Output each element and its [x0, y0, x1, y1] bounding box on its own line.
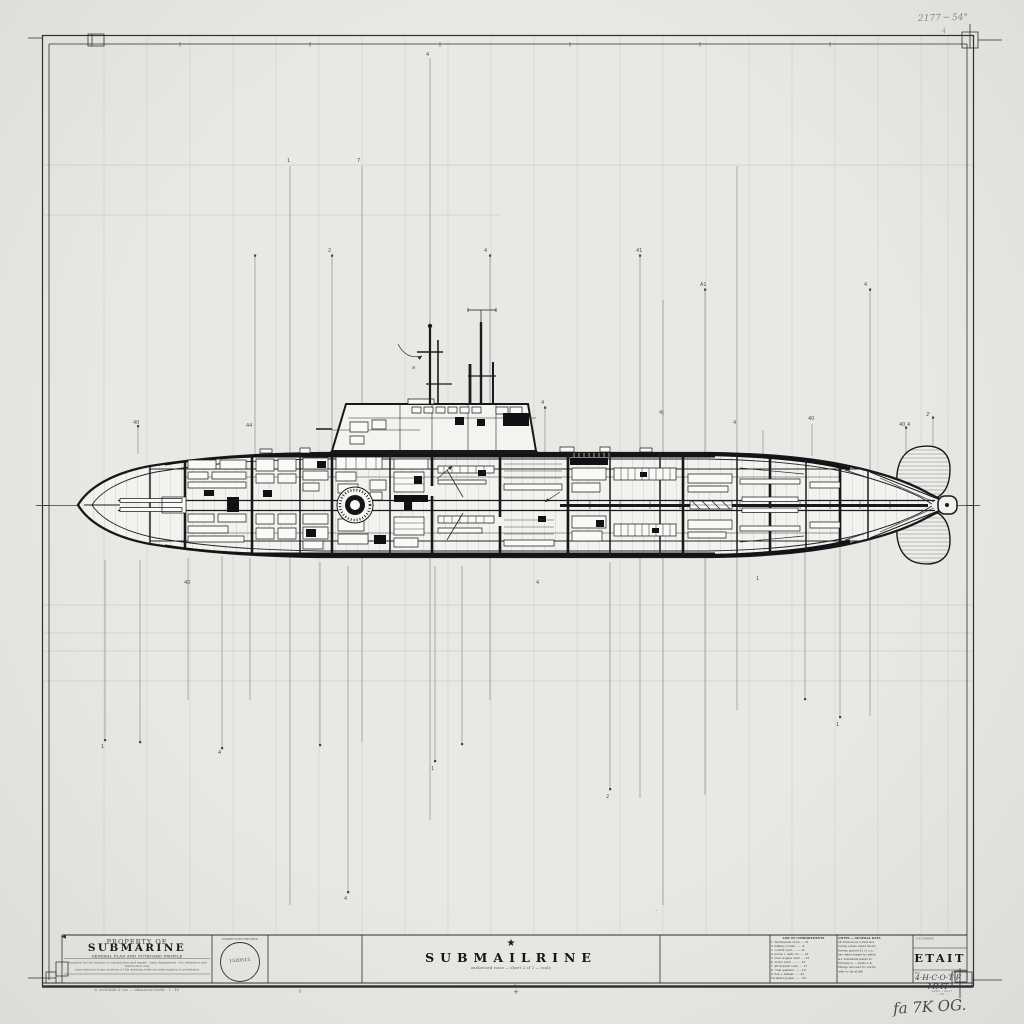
dimension-label: 1 [431, 766, 434, 772]
title-block-left-title: SUBMARINE [62, 942, 212, 954]
dimension-label: 1 [287, 158, 290, 164]
dimension-label: 40 [808, 416, 814, 422]
notes-line: refer to list at left. [838, 970, 912, 974]
dimension-label: 40 [133, 420, 139, 426]
title-block-center-title: SUBMAILRINE [362, 950, 660, 965]
dimension-label: 4| [659, 410, 664, 416]
dimension-ticks [104, 255, 934, 894]
dimension-label: A1 [700, 282, 707, 288]
sheet-value-handwriting: 4·H·C·O·T·F MMT [913, 973, 963, 991]
blueprint-canvas: 4044172444414|A1440440 42'a1441214041· [0, 0, 1024, 1024]
dimension-label: 4 [218, 750, 221, 756]
star-icon: ★ [362, 938, 660, 949]
stern-cap [938, 496, 957, 514]
dimension-label: · [656, 908, 658, 914]
stamp-header: INSPECTOR'S RECORD [212, 938, 268, 944]
dimension-label: 4 [541, 400, 544, 406]
title-block-left-line2: reproduction of any portion of this draw… [64, 968, 210, 975]
hatch-circle [337, 487, 373, 523]
sheet-id: ETAIT [913, 951, 967, 965]
blueprint-page: 4044172444414|A1440440 42'a1441214041· P… [0, 0, 1024, 1024]
dimension-label: 41 [636, 248, 642, 254]
dimension-label: 4 [864, 282, 867, 288]
cutaway-label: CUTAWAY [916, 937, 965, 944]
title-block-center-subtitle: authorized issue — sheet 2 of 2 — scale [362, 966, 660, 974]
dimension-label: 4 [733, 420, 736, 426]
pencil-note-small: 4 [942, 28, 962, 35]
footer-left-note: · w. archibald & son — submarine works ·… [92, 988, 312, 996]
dimension-label: 40 4 [899, 422, 910, 428]
dimension-label: 1 [836, 722, 839, 728]
dimension-label: 40 [184, 580, 190, 586]
parts-list-row: 10 steering gear ....... 24 [771, 977, 836, 981]
dimension-label: 2 [328, 248, 331, 254]
registration-tick: + [506, 988, 526, 996]
dimension-label: 1 [101, 744, 104, 750]
dimension-label: 44 [246, 423, 252, 429]
dimension-label: 2 [606, 794, 609, 800]
dimension-label: 4 [426, 52, 429, 58]
dimension-label: 4 [484, 248, 487, 254]
dimension-label: 2' [926, 412, 931, 418]
dimension-label: a [412, 365, 415, 371]
dimension-label: 4 [344, 896, 347, 902]
dimension-label: 7 [357, 158, 360, 164]
dimension-label: 4 [536, 580, 539, 586]
dimension-label: 1 [756, 576, 759, 582]
parts-list: LIST OF COMPARTMENTS 1 fwd torpedo room … [771, 937, 836, 983]
periscope-masts [417, 308, 496, 404]
notes-block: NOTES — GENERAL DATA all dimensions in f… [838, 937, 912, 983]
